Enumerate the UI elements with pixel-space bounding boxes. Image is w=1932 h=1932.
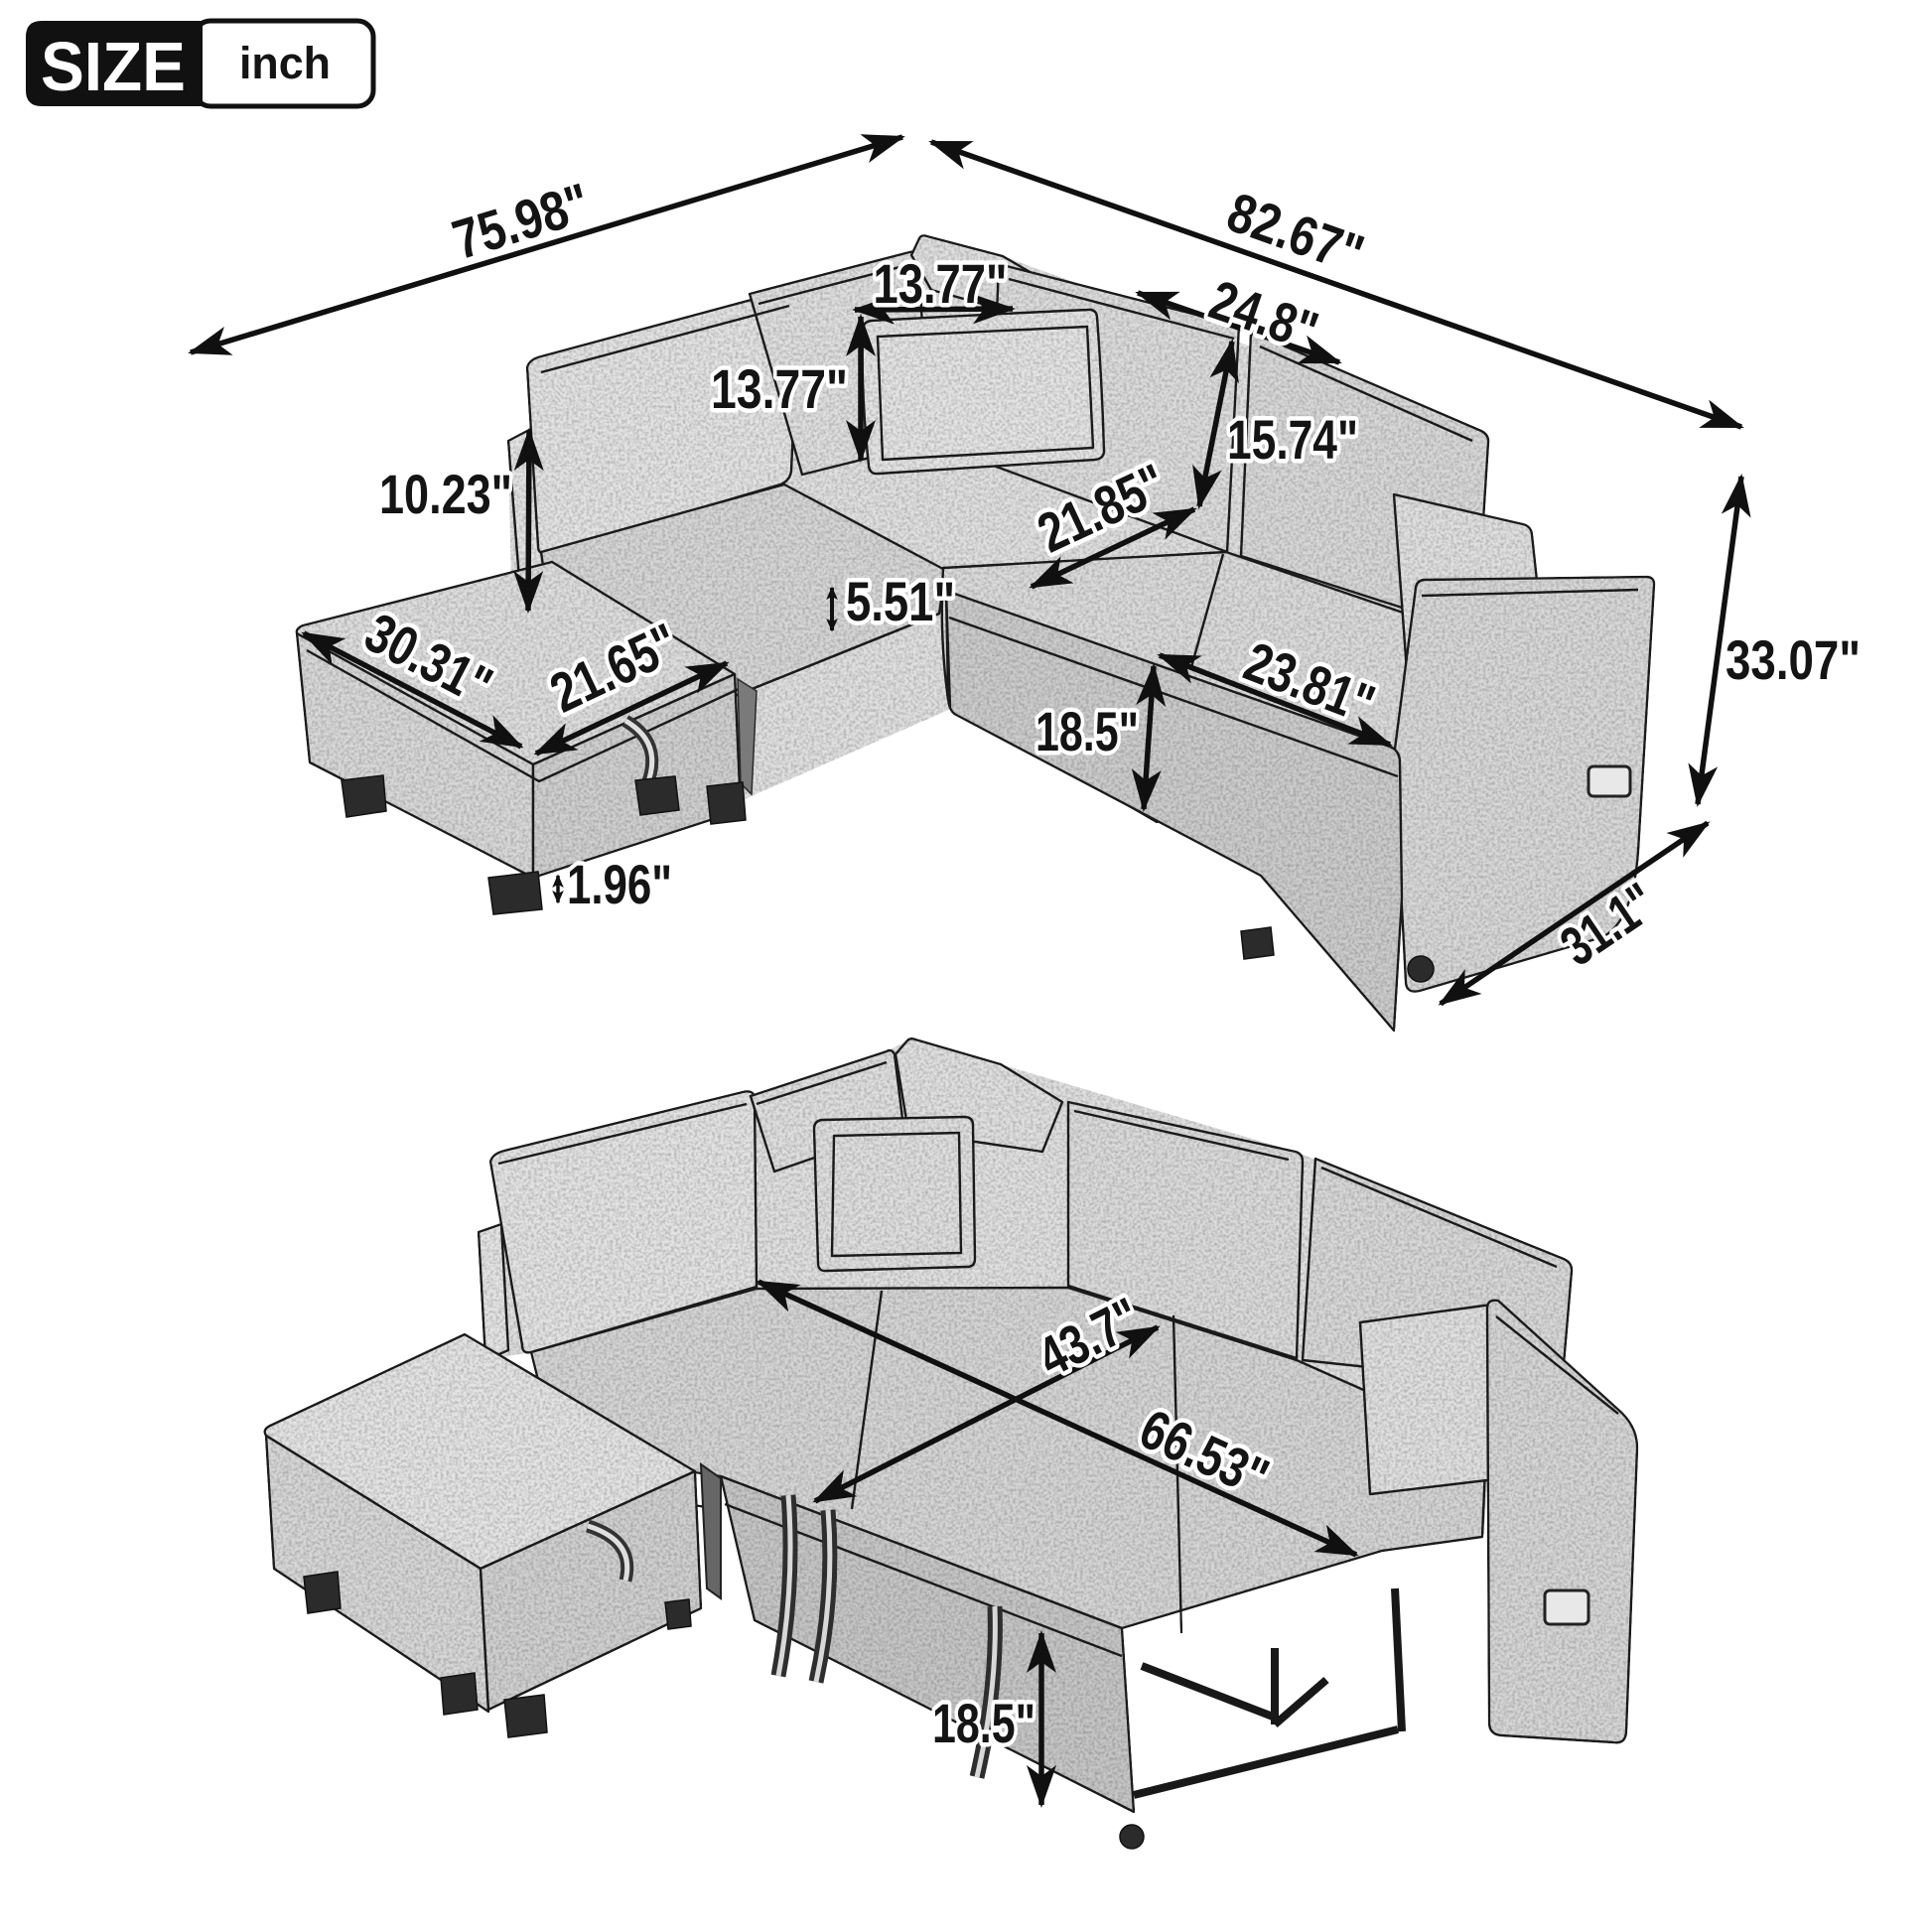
svg-text:18.5": 18.5"	[932, 1692, 1035, 1754]
svg-text:18.5": 18.5"	[1035, 700, 1139, 762]
svg-text:1.96": 1.96"	[567, 853, 672, 915]
svg-text:5.51": 5.51"	[846, 570, 955, 632]
svg-text:13.77": 13.77"	[874, 252, 1008, 315]
svg-text:15.74": 15.74"	[1227, 408, 1358, 471]
svg-text:inch: inch	[239, 38, 331, 88]
svg-text:10.23": 10.23"	[379, 463, 512, 525]
svg-text:33.07": 33.07"	[1725, 628, 1861, 691]
svg-text:13.77": 13.77"	[711, 357, 848, 420]
svg-text:SIZE: SIZE	[41, 28, 186, 105]
